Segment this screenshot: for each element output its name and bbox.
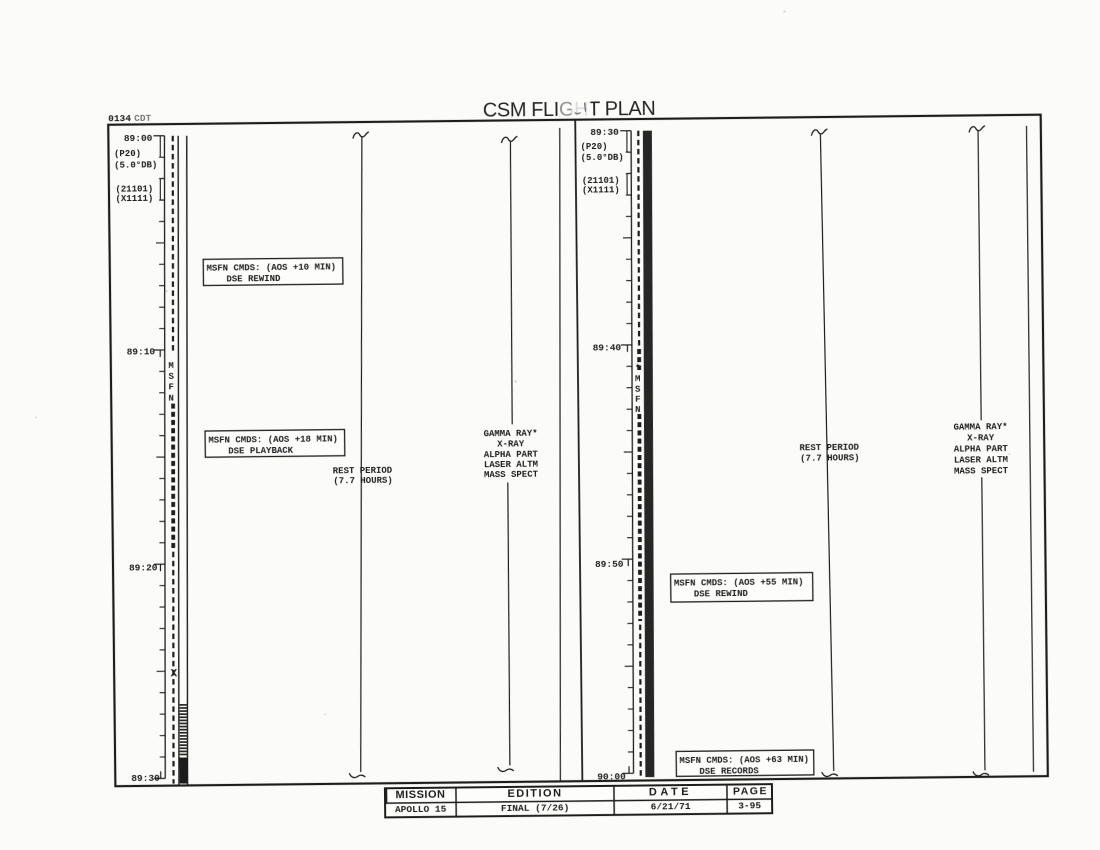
svg-text:REST PERIOD: REST PERIOD xyxy=(333,466,393,477)
svg-text:89:00: 89:00 xyxy=(124,133,153,144)
svg-text:REST PERIOD: REST PERIOD xyxy=(799,442,859,453)
svg-text:M: M xyxy=(168,361,173,371)
svg-text:90:00: 90:00 xyxy=(597,771,626,782)
svg-text:89:10: 89:10 xyxy=(127,346,156,357)
svg-text:N: N xyxy=(635,405,640,415)
svg-text:APOLLO 15: APOLLO 15 xyxy=(395,804,447,816)
svg-text:DSE RECORDS: DSE RECORDS xyxy=(699,766,759,777)
svg-text:X-RAY: X-RAY xyxy=(967,433,995,443)
svg-text:X-RAY: X-RAY xyxy=(497,439,525,449)
svg-text:CDT: CDT xyxy=(134,113,152,124)
svg-text:89:40: 89:40 xyxy=(593,342,622,353)
svg-text:EDITION: EDITION xyxy=(507,788,562,801)
svg-text:(X1111): (X1111) xyxy=(582,185,620,195)
svg-text:(5.0°DB): (5.0°DB) xyxy=(581,153,624,163)
svg-text:*: * xyxy=(635,363,640,373)
svg-text:LASER ALTM: LASER ALTM xyxy=(484,460,538,471)
svg-text:S: S xyxy=(168,372,174,382)
svg-text:DSE REWIND: DSE REWIND xyxy=(226,274,281,285)
svg-text:F: F xyxy=(168,382,173,392)
svg-text:PAGE: PAGE xyxy=(733,785,768,797)
svg-text:MASS SPECT: MASS SPECT xyxy=(484,470,539,481)
svg-text:M: M xyxy=(635,374,640,384)
svg-text:DATE: DATE xyxy=(649,786,692,798)
svg-text:89:50: 89:50 xyxy=(595,559,624,570)
svg-text:MSFN CMDS: (AOS +18 MIN): MSFN CMDS: (AOS +18 MIN) xyxy=(208,434,338,445)
svg-text:3-95: 3-95 xyxy=(738,800,761,811)
svg-text:(5.0°DB): (5.0°DB) xyxy=(114,160,157,170)
svg-text:89:30: 89:30 xyxy=(131,773,160,784)
svg-text:89:30: 89:30 xyxy=(590,127,619,138)
svg-text:(P20): (P20) xyxy=(580,142,607,152)
svg-text:LASER ALTM: LASER ALTM xyxy=(954,455,1008,466)
svg-text:MSFN CMDS: (AOS +63 MIN): MSFN CMDS: (AOS +63 MIN) xyxy=(679,755,809,766)
svg-text:(7.7 HOURS): (7.7 HOURS) xyxy=(800,453,860,464)
svg-text:ALPHA PART: ALPHA PART xyxy=(484,449,539,460)
svg-text:S: S xyxy=(635,385,641,395)
svg-text:89:20: 89:20 xyxy=(129,562,158,573)
svg-text:MSFN CMDS: (AOS +55 MIN): MSFN CMDS: (AOS +55 MIN) xyxy=(674,577,804,588)
svg-text:(7.7 HOURS): (7.7 HOURS) xyxy=(333,476,393,487)
svg-text:F: F xyxy=(635,395,640,405)
svg-text:FINAL (7/26): FINAL (7/26) xyxy=(501,802,570,814)
svg-text:N: N xyxy=(168,394,173,404)
svg-text:MASS SPECT: MASS SPECT xyxy=(954,466,1009,477)
svg-text:MISSION: MISSION xyxy=(395,789,445,802)
svg-text:GAMMA RAY*: GAMMA RAY* xyxy=(953,422,1007,433)
svg-text:GAMMA RAY*: GAMMA RAY* xyxy=(484,429,538,440)
svg-text:DSE PLAYBACK: DSE PLAYBACK xyxy=(228,446,294,457)
svg-text:(X1111): (X1111) xyxy=(115,194,153,204)
svg-text:0134: 0134 xyxy=(108,113,131,124)
svg-text:DSE REWIND: DSE REWIND xyxy=(694,589,749,600)
svg-text:MSFN CMDS: (AOS +10 MIN): MSFN CMDS: (AOS +10 MIN) xyxy=(206,263,336,274)
svg-text:ALPHA PART: ALPHA PART xyxy=(954,444,1009,455)
svg-text:X: X xyxy=(171,668,178,680)
svg-text:6/21/71: 6/21/71 xyxy=(651,801,691,812)
svg-text:(P20): (P20) xyxy=(114,149,141,159)
